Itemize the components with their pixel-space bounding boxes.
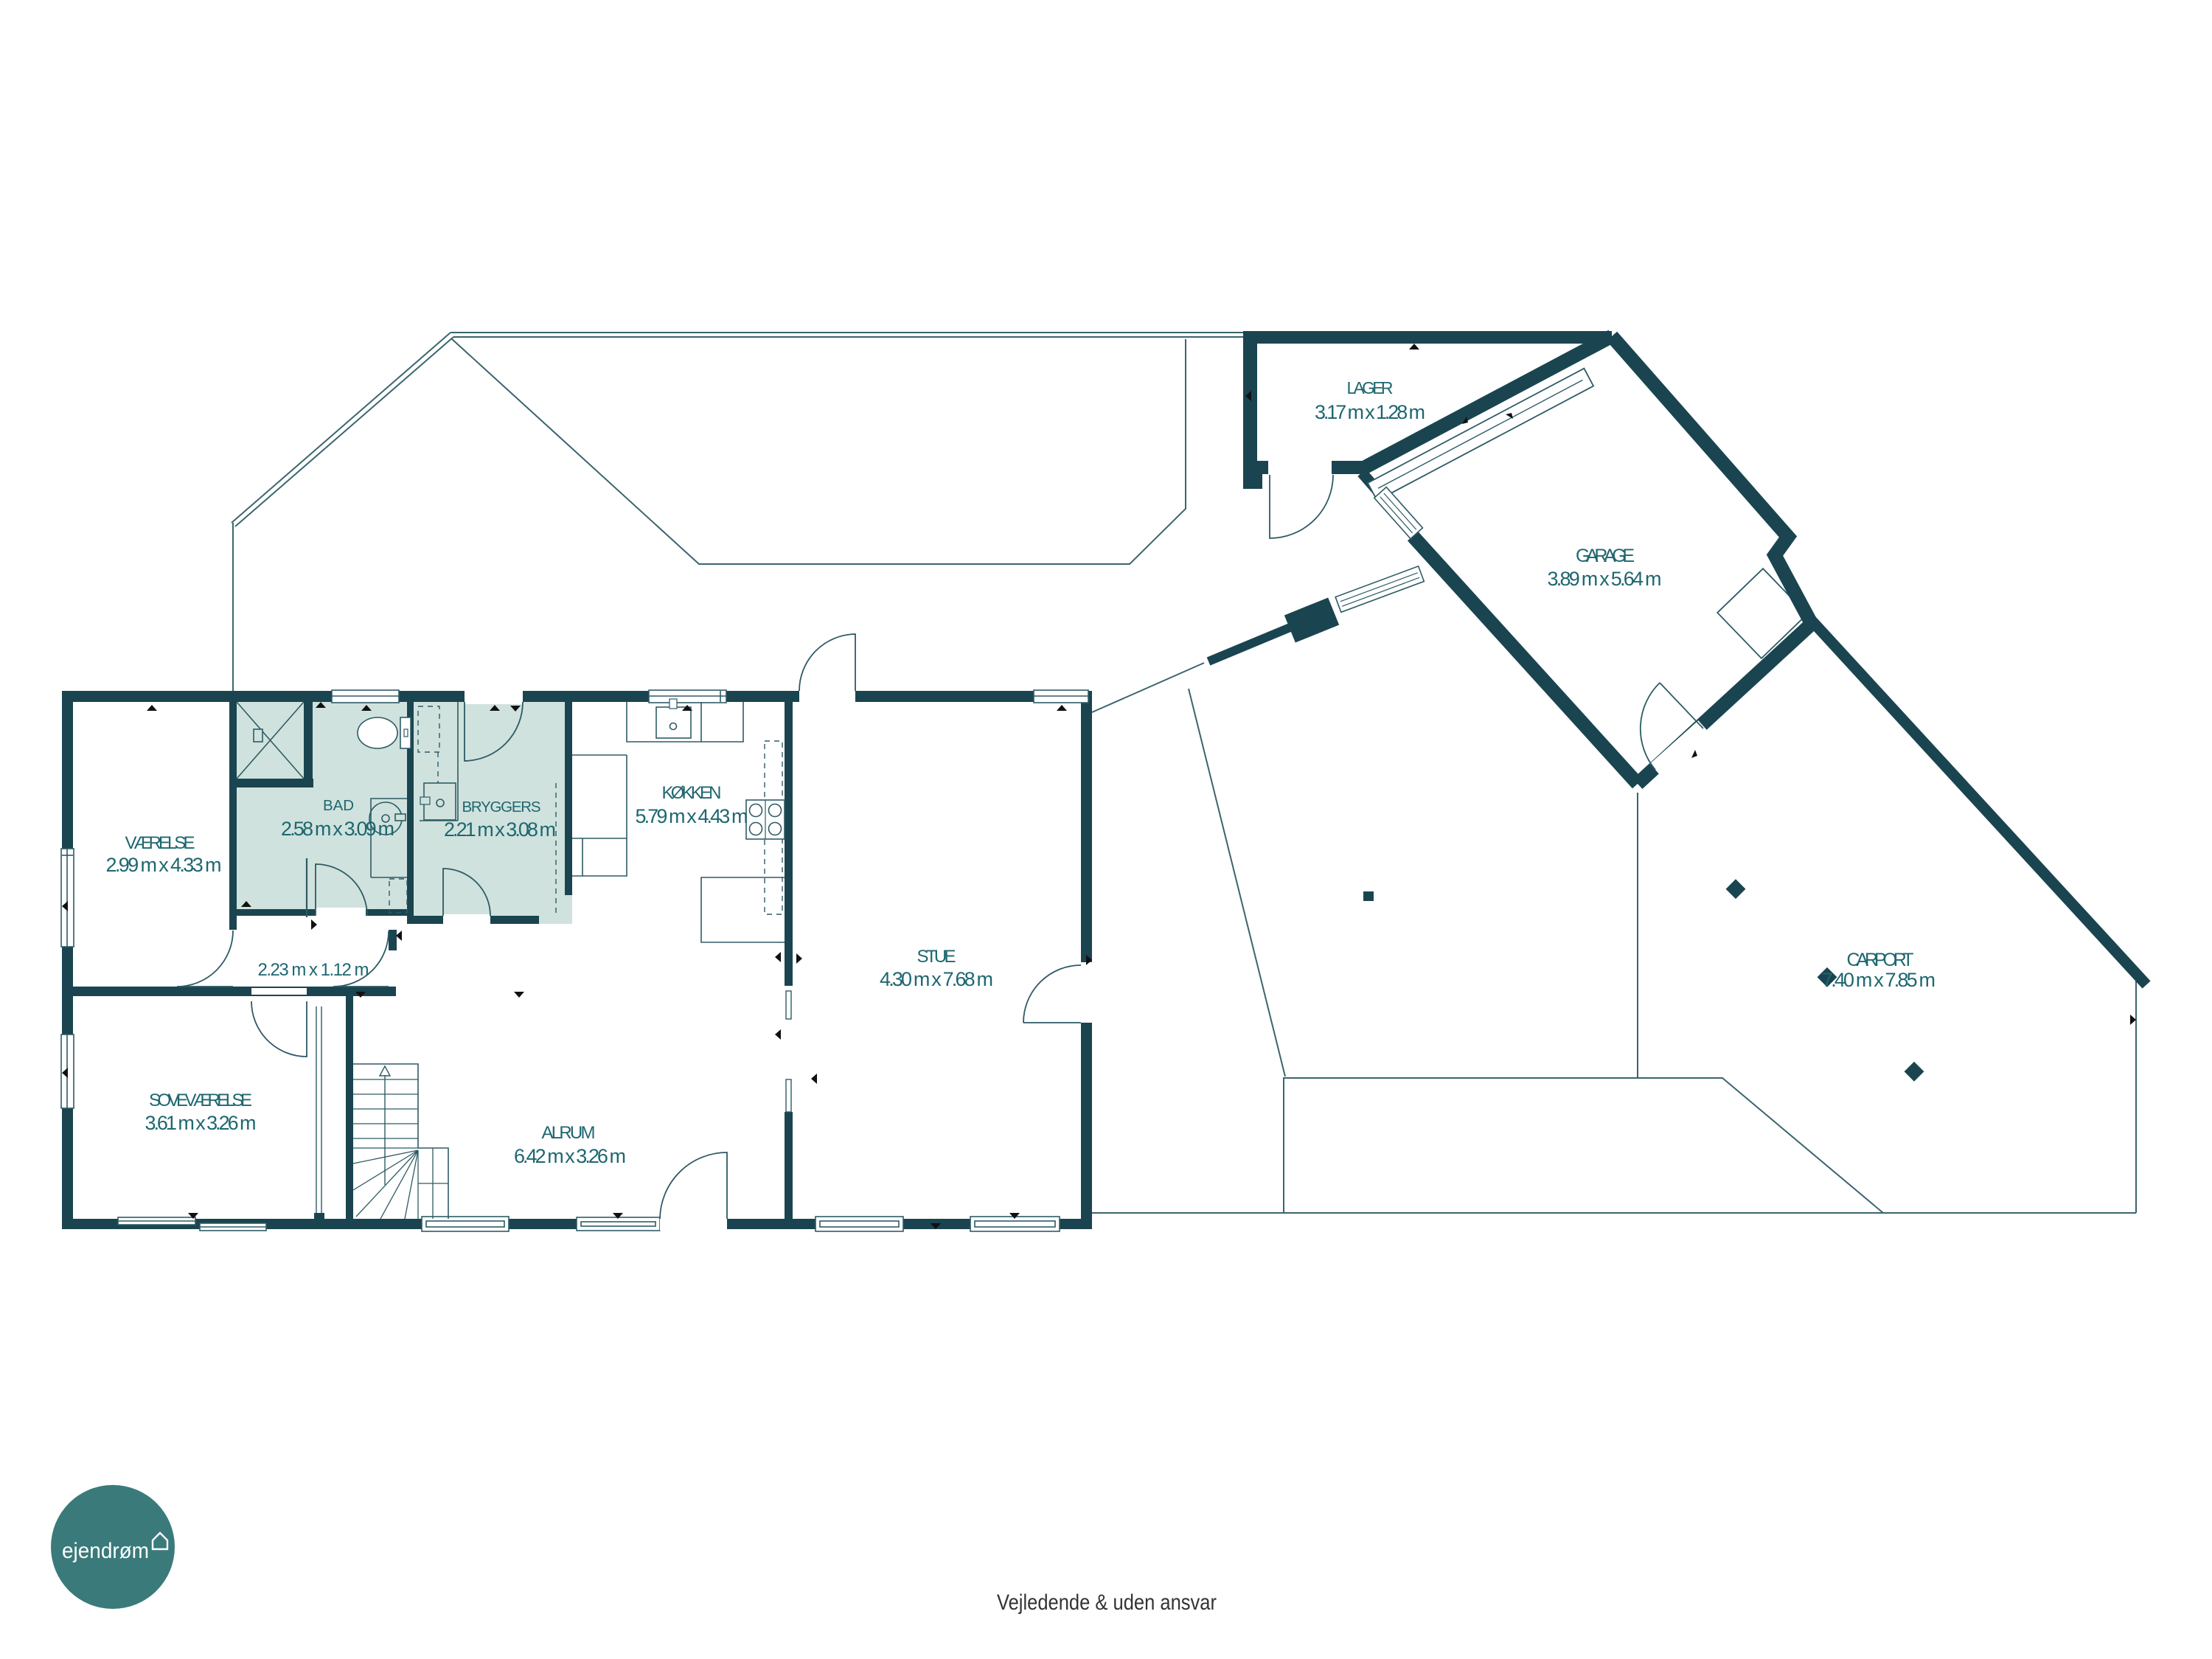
svg-text:2.21 m x 3.08 m: 2.21 m x 3.08 m xyxy=(444,818,556,841)
svg-text:LAGER: LAGER xyxy=(1347,378,1394,397)
svg-text:2.58 m x 3.09 m: 2.58 m x 3.09 m xyxy=(281,818,394,840)
svg-text:VÆRELSE: VÆRELSE xyxy=(125,833,195,853)
svg-text:ALRUM: ALRUM xyxy=(542,1123,596,1143)
svg-text:STUE: STUE xyxy=(917,947,956,967)
svg-text:2.99 m x 4.33 m: 2.99 m x 4.33 m xyxy=(106,854,222,876)
svg-text:3.61 m x 3.26 m: 3.61 m x 3.26 m xyxy=(145,1112,257,1134)
svg-text:ejendrøm: ejendrøm xyxy=(62,1539,149,1563)
svg-text:GARAGE: GARAGE xyxy=(1576,546,1635,566)
svg-text:SOVEVÆRELSE: SOVEVÆRELSE xyxy=(149,1091,252,1110)
svg-text:6.42 m x 3.26 m: 6.42 m x 3.26 m xyxy=(514,1145,626,1167)
svg-text:BAD: BAD xyxy=(323,797,354,814)
svg-text:BRYGGERS: BRYGGERS xyxy=(462,799,541,815)
svg-text:CARPORT: CARPORT xyxy=(1847,950,1914,970)
svg-text:2.23 m x 1.12 m: 2.23 m x 1.12 m xyxy=(258,960,369,980)
svg-text:7.40 m x 7.85 m: 7.40 m x 7.85 m xyxy=(1822,969,1935,991)
svg-text:4.30 m x 7.68 m: 4.30 m x 7.68 m xyxy=(880,968,993,990)
svg-text:KØKKEN: KØKKEN xyxy=(662,783,722,803)
svg-text:Vejledende & uden ansvar: Vejledende & uden ansvar xyxy=(997,1590,1217,1615)
svg-text:5.79 m x 4.43 m: 5.79 m x 4.43 m xyxy=(636,805,748,827)
svg-text:3.89 m x 5.64 m: 3.89 m x 5.64 m xyxy=(1548,568,1662,590)
svg-text:3.17 m x 1.28 m: 3.17 m x 1.28 m xyxy=(1315,401,1425,423)
